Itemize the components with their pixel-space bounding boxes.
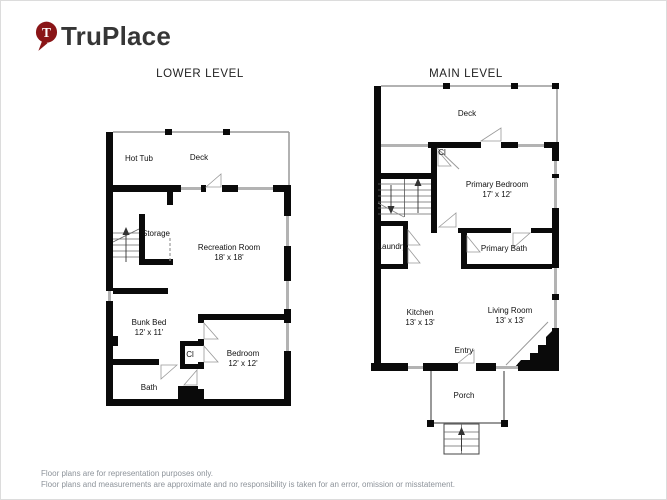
room-label-primary-bedroom: Primary Bedroom 17' x 12' xyxy=(466,180,528,200)
floorplan-drawing xyxy=(1,1,667,500)
room-label-laundry: Laundry xyxy=(378,242,407,252)
room-label-main-closet: Cl xyxy=(438,148,446,158)
room-name: Primary Bedroom xyxy=(466,180,528,190)
room-label-bedroom: Bedroom 12' x 12' xyxy=(227,349,259,369)
lower-walls xyxy=(106,129,291,406)
lower-stairs-icon xyxy=(113,227,139,262)
room-dims: 13' x 13' xyxy=(488,316,532,326)
room-label-lower-closet: Cl xyxy=(186,350,194,360)
room-name: Kitchen xyxy=(405,308,434,318)
room-label-hot-tub: Hot Tub xyxy=(125,154,153,164)
floor-plan-page: T TruPlace LOWER LEVEL MAIN LEVEL xyxy=(0,0,667,500)
room-label-porch: Porch xyxy=(454,391,475,401)
room-label-bunk-bed: Bunk Bed 12' x 11' xyxy=(132,318,167,338)
room-label-kitchen: Kitchen 13' x 13' xyxy=(405,308,434,328)
room-label-lower-deck: Deck xyxy=(190,153,208,163)
room-dims: 18' x 18' xyxy=(198,253,260,263)
disclaimer-line-1: Floor plans are for representation purpo… xyxy=(41,468,455,479)
room-label-storage: Storage xyxy=(142,229,170,239)
room-label-living-room: Living Room 13' x 13' xyxy=(488,306,532,326)
disclaimer: Floor plans are for representation purpo… xyxy=(41,468,455,490)
lower-level-floorplan xyxy=(106,129,291,406)
disclaimer-line-2: Floor plans and measurements are approxi… xyxy=(41,479,455,490)
room-dims: 13' x 13' xyxy=(405,318,434,328)
porch-steps-icon xyxy=(444,424,479,454)
room-label-recreation-room: Recreation Room 18' x 18' xyxy=(198,243,260,263)
room-label-bath: Bath xyxy=(141,383,157,393)
room-label-primary-bath: Primary Bath xyxy=(481,244,527,254)
room-dims: 17' x 12' xyxy=(466,190,528,200)
room-name: Bedroom xyxy=(227,349,259,359)
room-name: Recreation Room xyxy=(198,243,260,253)
fireplace-icon xyxy=(515,329,554,367)
room-label-main-deck: Deck xyxy=(458,109,476,119)
main-walls xyxy=(371,83,559,427)
main-stairs-icon xyxy=(378,178,431,217)
room-dims: 12' x 12' xyxy=(227,359,259,369)
room-dims: 12' x 11' xyxy=(132,328,167,338)
room-label-entry: Entry xyxy=(455,346,474,356)
room-name: Living Room xyxy=(488,306,532,316)
room-name: Bunk Bed xyxy=(132,318,167,328)
